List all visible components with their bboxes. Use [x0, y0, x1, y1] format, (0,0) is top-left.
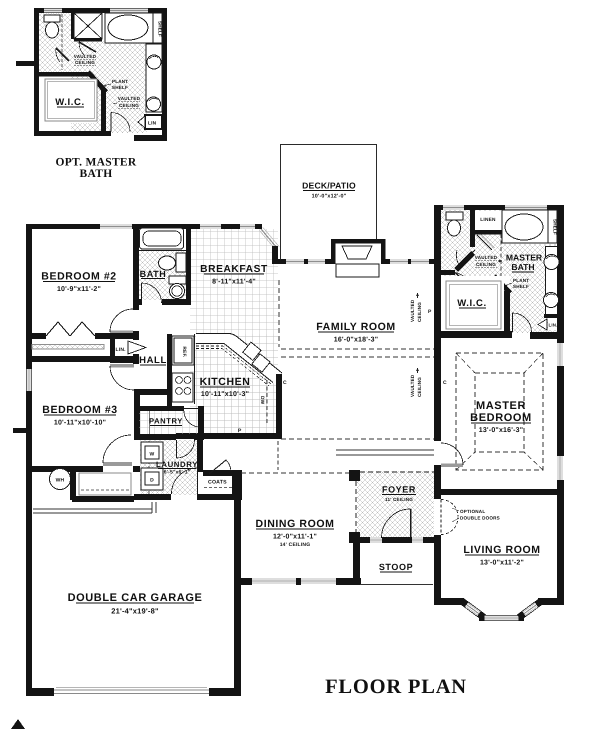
- svg-text:SHELF: SHELF: [158, 21, 163, 37]
- svg-text:BATH: BATH: [80, 168, 113, 180]
- svg-text:MASTER: MASTER: [476, 400, 526, 412]
- svg-text:VAULTED: VAULTED: [410, 299, 415, 322]
- svg-text:VAULTED: VAULTED: [410, 374, 415, 397]
- svg-text:PLANT: PLANT: [513, 278, 529, 283]
- svg-text:LIN: LIN: [148, 121, 157, 127]
- svg-text:C: C: [283, 380, 287, 386]
- svg-text:VAULTED: VAULTED: [118, 96, 141, 101]
- svg-text:13'-0"x16'-3": 13'-0"x16'-3": [479, 427, 523, 434]
- svg-text:FOYER: FOYER: [382, 485, 416, 495]
- svg-text:CEILING: CEILING: [476, 262, 496, 267]
- svg-text:CEILING: CEILING: [417, 377, 422, 397]
- svg-text:BEDROOM #3: BEDROOM #3: [42, 404, 117, 416]
- svg-text:OPTIONAL: OPTIONAL: [460, 509, 485, 514]
- svg-text:STOOP: STOOP: [379, 562, 413, 572]
- svg-text:10'-0"x12'-0": 10'-0"x12'-0": [312, 194, 347, 200]
- svg-text:LIN.: LIN.: [116, 347, 127, 353]
- svg-text:PLANT: PLANT: [112, 79, 128, 84]
- svg-text:LAUNDRY: LAUNDRY: [156, 460, 198, 469]
- svg-text:BATH: BATH: [511, 262, 534, 272]
- svg-text:21'-4"x19'-8": 21'-4"x19'-8": [111, 607, 159, 616]
- svg-text:10'-9"x11'-2": 10'-9"x11'-2": [57, 286, 101, 293]
- svg-text:10'-11"x10'-10": 10'-11"x10'-10": [54, 420, 106, 427]
- svg-text:BEDROOM #2: BEDROOM #2: [41, 271, 116, 283]
- svg-text:FLOOR PLAN: FLOOR PLAN: [325, 676, 467, 698]
- svg-text:11' CEILING: 11' CEILING: [385, 497, 413, 502]
- svg-text:14' CEILING: 14' CEILING: [280, 542, 311, 548]
- svg-text:DOUBLE DOORS: DOUBLE DOORS: [460, 516, 500, 521]
- svg-text:D: D: [150, 478, 154, 484]
- svg-text:WH: WH: [56, 478, 65, 484]
- svg-text:VAULTED: VAULTED: [475, 255, 498, 260]
- svg-text:8'-11"x11'-4": 8'-11"x11'-4": [212, 279, 256, 286]
- svg-text:DW: DW: [259, 396, 265, 405]
- svg-text:CEILING: CEILING: [75, 60, 95, 65]
- svg-text:VAULTED: VAULTED: [74, 54, 97, 59]
- svg-text:P: P: [428, 309, 432, 315]
- svg-text:OPT. MASTER: OPT. MASTER: [55, 157, 136, 169]
- svg-text:BEDROOM: BEDROOM: [470, 412, 532, 424]
- svg-text:13'-0"x11'-2": 13'-0"x11'-2": [480, 560, 524, 567]
- svg-text:W.I.C.: W.I.C.: [457, 298, 486, 309]
- svg-text:KITCHEN: KITCHEN: [200, 376, 251, 388]
- svg-text:BREAKFAST: BREAKFAST: [200, 264, 268, 275]
- svg-text:12'-0"x11'-1": 12'-0"x11'-1": [273, 534, 317, 541]
- svg-text:10'-11"x10'-3": 10'-11"x10'-3": [201, 391, 249, 398]
- svg-text:16'-0"x18'-3": 16'-0"x18'-3": [334, 337, 378, 344]
- svg-text:CEILING: CEILING: [119, 103, 139, 108]
- svg-text:DECK/PATIO: DECK/PATIO: [302, 181, 356, 191]
- svg-text:SHELF: SHELF: [553, 219, 558, 235]
- svg-text:CEILING: CEILING: [417, 302, 422, 322]
- svg-text:LINEN: LINEN: [480, 217, 496, 223]
- svg-text:P: P: [238, 428, 242, 434]
- svg-text:W: W: [150, 452, 155, 458]
- svg-text:COATS: COATS: [208, 480, 227, 486]
- svg-text:W.I.C.: W.I.C.: [55, 97, 84, 108]
- svg-text:SHELF: SHELF: [112, 85, 128, 90]
- svg-text:HALL: HALL: [139, 355, 167, 366]
- svg-text:REF.: REF.: [181, 346, 187, 357]
- svg-text:LIN.: LIN.: [549, 323, 558, 328]
- svg-text:DINING ROOM: DINING ROOM: [256, 518, 335, 530]
- svg-text:PANTRY: PANTRY: [149, 417, 183, 426]
- svg-text:C: C: [443, 380, 447, 386]
- svg-text:DOUBLE CAR GARAGE: DOUBLE CAR GARAGE: [68, 592, 203, 604]
- svg-text:BATH: BATH: [140, 269, 167, 279]
- svg-text:MASTER: MASTER: [506, 253, 543, 263]
- svg-text:SHELF: SHELF: [513, 284, 529, 289]
- svg-text:LIVING ROOM: LIVING ROOM: [463, 544, 540, 556]
- svg-text:FAMILY ROOM: FAMILY ROOM: [316, 321, 396, 333]
